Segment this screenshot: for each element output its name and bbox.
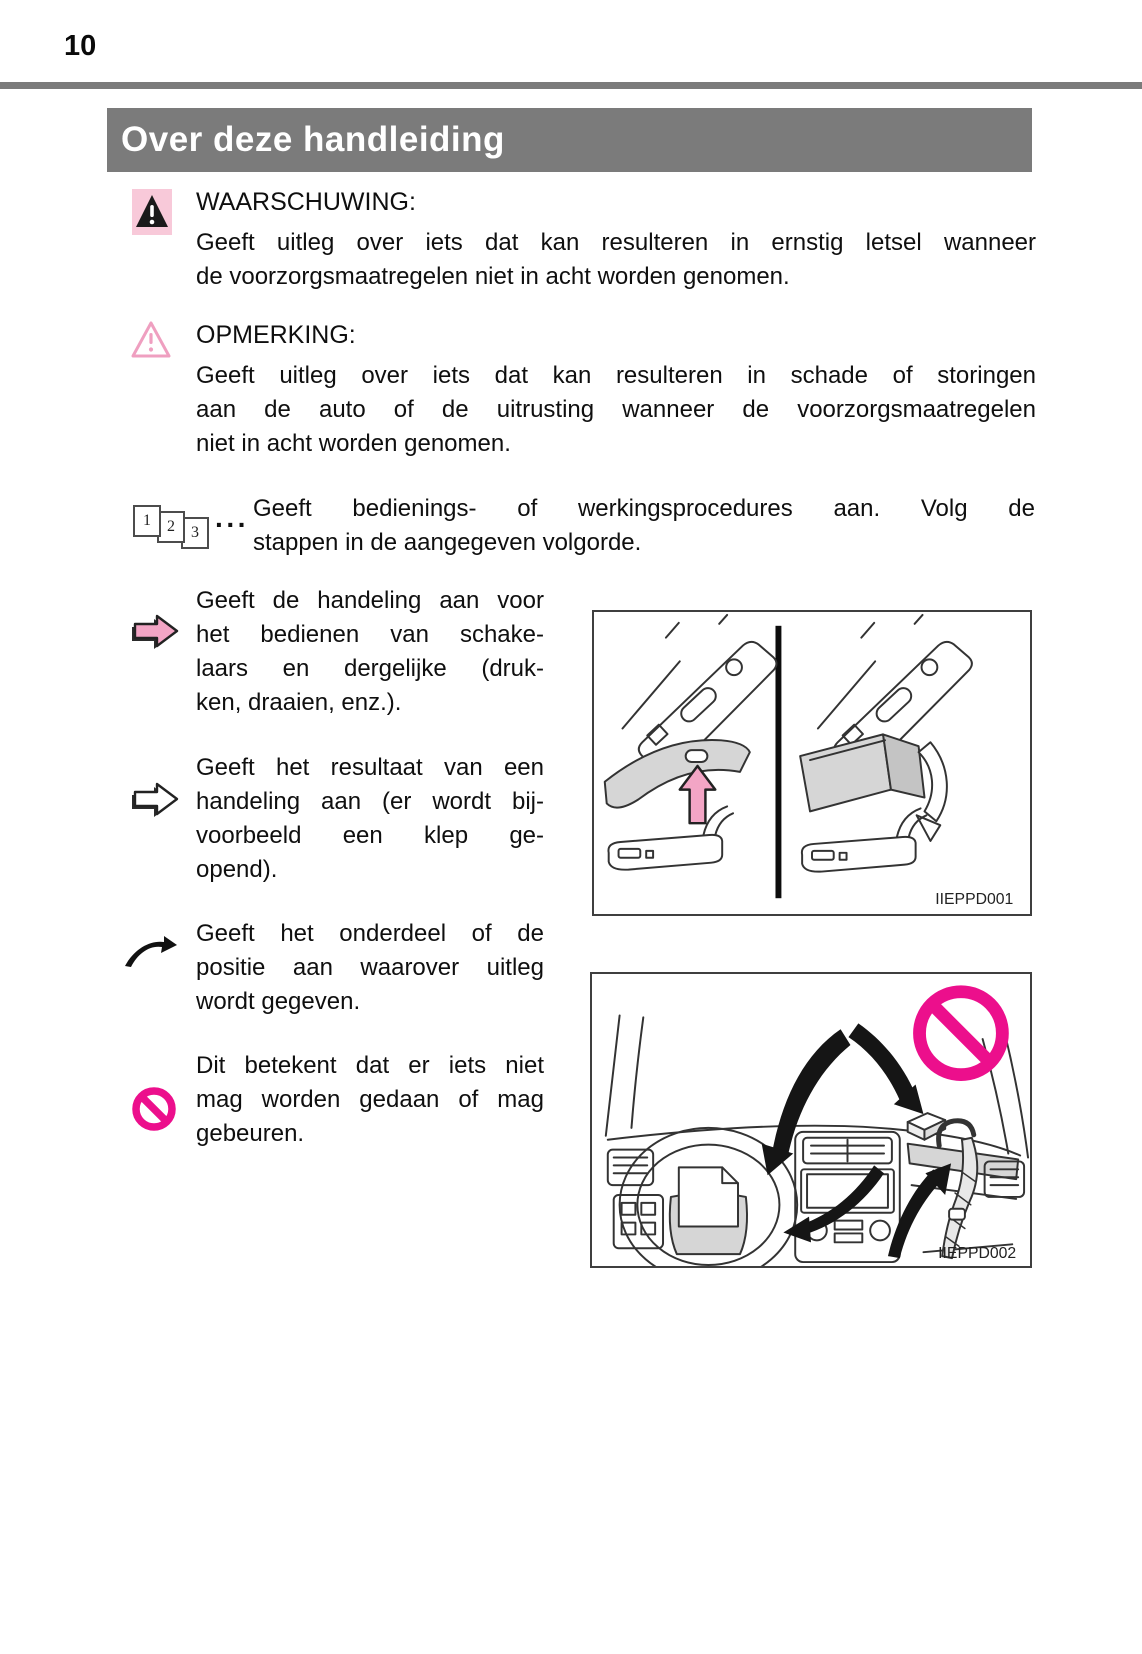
paper-on-wheel [679,1167,738,1226]
result-arrow-text: Geeft het resultaat van eenhandeling aan… [196,751,544,887]
manual-page: 10 Over deze handleiding WAARSCHUWING: G… [0,0,1142,1654]
action-arrow-icon [131,612,179,659]
prohibition-text: Dit betekent dat er iets nietmag worden … [196,1049,544,1151]
panel-holder-closed [605,615,777,870]
step-box-3: 3 [181,517,209,549]
step-box-1: 1 [133,505,161,537]
notice-icon [130,320,172,365]
no-symbol-icon [920,992,1003,1075]
figure-code-2: IIEPPD002 [938,1245,1016,1262]
dashboard-illustration: IIEPPD002 [592,974,1030,1266]
warning-text: Geeft uitleg over iets dat kan resultere… [196,226,1036,294]
overhead-console-illustration: IIEPPD001 [594,612,1030,914]
steps-text: Geeft bedienings- of werkingsprocedures … [253,492,1035,560]
steps-icon: 1 2 3 ··· [133,505,249,549]
part-pointer-text: Geeft het onderdeel of depositie aan waa… [196,917,544,1019]
prohibition-icon [131,1086,177,1137]
panel-holder-open [800,615,972,872]
figure-dashboard: IIEPPD002 [590,972,1032,1268]
page-number: 10 [64,30,96,63]
part-pointer-icon [124,936,178,973]
warning-icon [132,189,172,240]
steps-ellipsis: ··· [215,511,249,539]
top-rule-divider [0,82,1142,89]
action-arrow-text: Geeft de handeling aan voorhet bedienen … [196,584,544,720]
figure-overhead-console: IIEPPD001 [592,610,1032,916]
notice-label: OPMERKING: [196,321,356,350]
notice-text: Geeft uitleg over iets dat kan resultere… [196,359,1036,461]
section-title-bar: Over deze handleiding [107,108,1032,172]
open-compartment [800,734,891,811]
page-title: Over deze handleiding [121,120,505,160]
step-box-2: 2 [157,511,185,543]
result-arrow-icon [131,780,179,827]
warning-label: WAARSCHUWING: [196,188,416,217]
figure-code-1: IIEPPD001 [935,891,1013,908]
